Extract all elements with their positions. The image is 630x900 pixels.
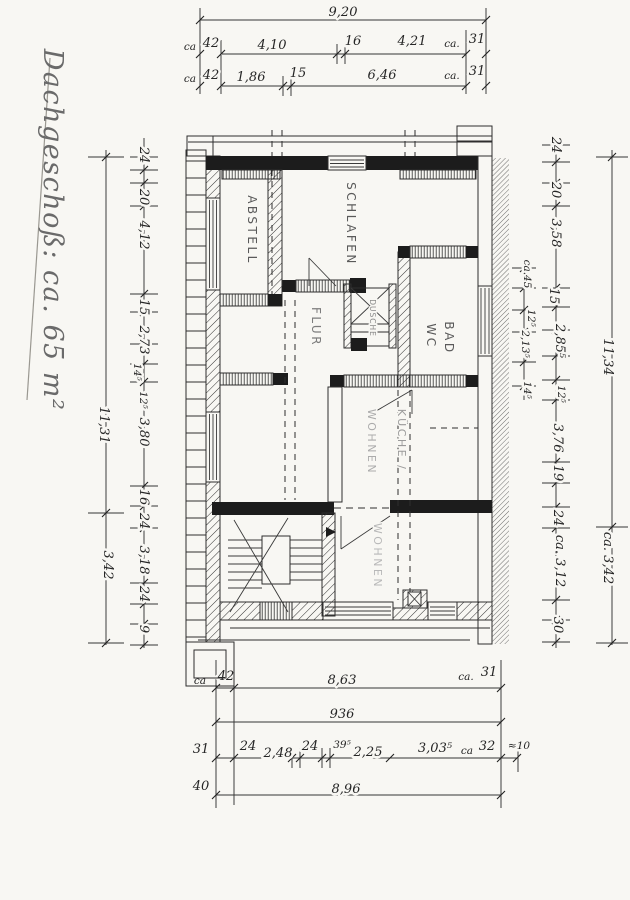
dim-label: 2,13⁵ bbox=[519, 329, 531, 358]
oven-block bbox=[403, 590, 427, 608]
dim-label: 1,86 bbox=[237, 70, 266, 85]
wall-post bbox=[282, 280, 296, 292]
dim-label: 16 bbox=[345, 34, 362, 49]
dim-label: ca. bbox=[444, 70, 459, 82]
dim-label: 3,42 bbox=[100, 551, 115, 580]
dim-label: 3,80 bbox=[136, 418, 151, 447]
window-sill-band bbox=[400, 170, 476, 179]
right-wall-window bbox=[478, 286, 492, 356]
dim-label: 9 bbox=[136, 625, 151, 633]
right-wall-hatch bbox=[492, 158, 509, 644]
dim-label: 15 bbox=[546, 288, 561, 305]
dim-label: 24 bbox=[239, 739, 257, 754]
wall-post bbox=[466, 375, 478, 387]
dim-label: ca. bbox=[458, 671, 473, 683]
wall-post bbox=[466, 246, 478, 258]
dim-label: ca bbox=[184, 41, 196, 53]
room-label-schlafen: SCHLAFEN bbox=[344, 182, 358, 266]
dim-label: 14⁵ bbox=[131, 363, 143, 381]
wall-post bbox=[273, 373, 288, 385]
dim-label: 12⁵ bbox=[555, 385, 567, 403]
dim-label: ca bbox=[461, 745, 473, 757]
dim-label: 2,73 bbox=[136, 325, 151, 355]
dim-label: 9,20 bbox=[329, 5, 358, 20]
dim-label: 20 bbox=[548, 181, 563, 199]
dim-label: 2,48 bbox=[263, 746, 293, 761]
dim-label: 39⁵ bbox=[333, 739, 351, 751]
dim-label: 4,10 bbox=[257, 38, 287, 53]
page-title: Dachgeschoß: ca. 65 m² bbox=[37, 48, 68, 412]
scanned-floorplan-page: Dachgeschoß: ca. 65 m² 9,20 ca 42 4,10 1… bbox=[0, 0, 630, 900]
dim-label: 8,63 bbox=[328, 673, 357, 688]
dim-label: 2,85⁵ bbox=[552, 323, 567, 359]
dim-label: 31 bbox=[469, 32, 486, 47]
schlafen-bottom-wall bbox=[296, 280, 350, 292]
dim-label: 3,58 bbox=[548, 219, 563, 248]
dim-label: 24 bbox=[136, 585, 151, 603]
dim-label: 14⁵ bbox=[521, 381, 533, 399]
dim-label: 40 bbox=[192, 779, 210, 794]
dim-label: 936 bbox=[330, 707, 355, 722]
floorplan-drawing: Dachgeschoß: ca. 65 m² 9,20 ca 42 4,10 1… bbox=[0, 0, 630, 900]
dim-label: 4,21 bbox=[397, 34, 427, 49]
bad-top-wall bbox=[410, 246, 466, 258]
dim-label: 3,18 bbox=[136, 546, 151, 575]
dim-label: ca. 3,42 bbox=[600, 532, 615, 584]
room-label-wohnen: WOHNEN bbox=[371, 523, 384, 589]
dim-label: 19 bbox=[550, 465, 565, 482]
dim-label: ca bbox=[194, 675, 206, 687]
dim-label: ca bbox=[184, 73, 196, 85]
wall-post bbox=[398, 246, 410, 258]
dim-label: ≈10 bbox=[508, 740, 530, 752]
dim-label: 15 bbox=[290, 66, 307, 81]
dim-label: 20 bbox=[136, 188, 151, 206]
wall-post bbox=[330, 375, 344, 387]
room-label-wc: WC bbox=[424, 323, 438, 348]
dim-label: 11,31 bbox=[96, 406, 111, 443]
mid-left-wall bbox=[220, 373, 273, 385]
dim-label: 31 bbox=[193, 742, 210, 757]
room-label-kueche: KÜCHE / bbox=[395, 409, 408, 472]
dim-label: 31 bbox=[481, 665, 498, 680]
paper-background bbox=[0, 0, 630, 900]
dim-label: 16 bbox=[136, 489, 151, 506]
room-label-bad: BAD bbox=[442, 321, 456, 354]
dim-label: 3,76 bbox=[550, 424, 565, 453]
dim-label: 3,03⁵ bbox=[418, 741, 453, 756]
top-window bbox=[328, 156, 366, 170]
dim-label: 42 bbox=[202, 68, 220, 83]
black-cross-wall-right bbox=[390, 500, 492, 513]
dim-label: 30 bbox=[550, 617, 565, 634]
mid-right-wall bbox=[344, 375, 466, 387]
wall-post bbox=[350, 278, 366, 293]
dim-label: 42 bbox=[202, 36, 220, 51]
room-label-dusche: DUSCHE bbox=[368, 299, 377, 337]
bad-left-wall bbox=[398, 252, 410, 387]
black-cross-wall-left bbox=[212, 502, 334, 515]
dim-label: 2,25 bbox=[353, 745, 383, 760]
room-label-kueche-wohnen: WOHNEN bbox=[365, 409, 378, 475]
dim-label: 11,34 bbox=[600, 338, 615, 375]
dim-label: ca.45 bbox=[521, 260, 533, 289]
dim-label: 24 bbox=[136, 512, 151, 530]
dim-label: ca. bbox=[444, 38, 459, 50]
dim-label: 12⁵ bbox=[525, 309, 537, 327]
room-label-abstell: ABSTELL bbox=[245, 195, 259, 265]
right-exterior-wall bbox=[478, 156, 492, 644]
dim-label: 31 bbox=[469, 64, 486, 79]
dim-label: 15 bbox=[136, 299, 151, 316]
room-label-flur: FLUR bbox=[309, 307, 323, 347]
wall-post bbox=[268, 294, 282, 306]
abstell-bottom-wall bbox=[220, 294, 268, 306]
dim-label: 24 bbox=[301, 739, 319, 754]
dim-label: 24 bbox=[136, 146, 151, 164]
dim-label: 24 bbox=[550, 509, 565, 527]
dim-label: 12⁵ bbox=[137, 391, 149, 409]
dim-label: ca. 3,12 bbox=[552, 535, 567, 587]
dim-label: 8,96 bbox=[332, 782, 361, 797]
kueche-left-wall bbox=[328, 387, 342, 502]
dim-label: 4,12 bbox=[136, 220, 151, 250]
dim-label: 6,46 bbox=[368, 68, 397, 83]
roof-edge-strip bbox=[186, 150, 206, 642]
dim-label: 32 bbox=[479, 739, 496, 754]
abstell-right-wall bbox=[268, 170, 282, 306]
dim-label: 24 bbox=[548, 136, 563, 154]
